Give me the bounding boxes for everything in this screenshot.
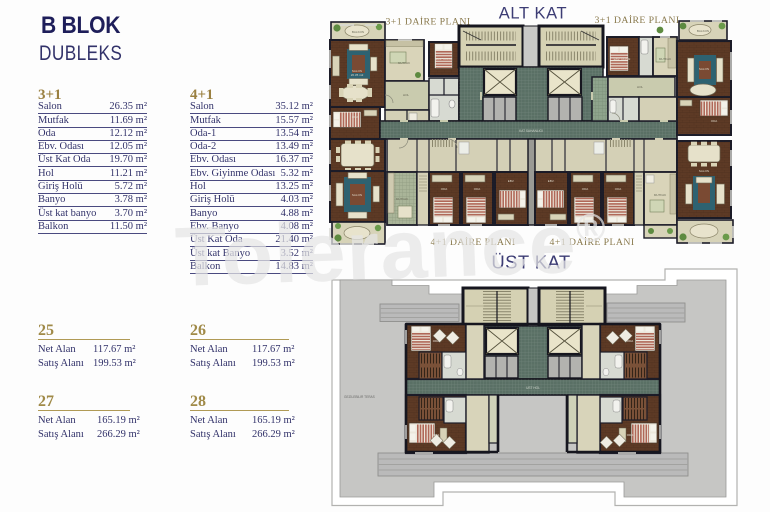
svg-text:EBV. ODASI: EBV. ODASI	[436, 57, 453, 61]
svg-text:BALKON: BALKON	[697, 29, 709, 33]
svg-text:3+1 DAİRE PLANI: 3+1 DAİRE PLANI	[595, 14, 680, 26]
svg-text:UST HOL: UST HOL	[526, 386, 540, 390]
svg-text:MUTFAK: MUTFAK	[398, 61, 410, 65]
svg-text:HOL: HOL	[637, 85, 644, 89]
svg-text:ODA: ODA	[711, 119, 718, 123]
svg-text:GEZILEBILIR TERAS: GEZILEBILIR TERAS	[344, 395, 375, 399]
svg-text:ODA: ODA	[627, 433, 634, 437]
svg-text:ALT KAT: ALT KAT	[499, 5, 567, 23]
svg-text:KAT SAHANLIGI: KAT SAHANLIGI	[519, 129, 543, 133]
svg-text:ODA: ODA	[433, 339, 440, 343]
svg-text:EBV.: EBV.	[548, 179, 555, 183]
svg-text:EBV.: EBV.	[508, 179, 515, 183]
svg-text:26.35 m2: 26.35 m2	[351, 73, 364, 77]
svg-text:ODA: ODA	[615, 187, 622, 191]
svg-text:ODA: ODA	[627, 339, 634, 343]
svg-text:BALKON: BALKON	[352, 30, 364, 34]
svg-text:ODA: ODA	[352, 115, 359, 119]
svg-text:ODA: ODA	[433, 433, 440, 437]
svg-text:SALON: SALON	[699, 169, 709, 173]
svg-text:EBV. ODASI: EBV. ODASI	[614, 57, 631, 61]
svg-text:SALON: SALON	[699, 67, 709, 71]
svg-text:HOL: HOL	[403, 93, 410, 97]
svg-text:MUTFAK: MUTFAK	[659, 57, 671, 61]
svg-text:MUTFAK: MUTFAK	[654, 193, 666, 197]
svg-text:ODA: ODA	[441, 187, 448, 191]
